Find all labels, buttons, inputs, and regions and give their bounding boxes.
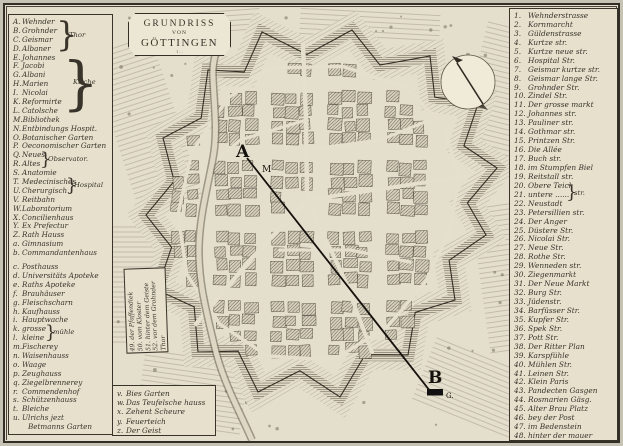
legend-key: F. [13, 62, 22, 69]
map-letter-g: G. [446, 392, 454, 400]
legend-key: g. [13, 299, 22, 306]
legend-number: 29. [514, 262, 528, 269]
legend-key: s. [13, 396, 22, 403]
legend-key: L. [13, 107, 22, 114]
legend-number: 17. [514, 155, 528, 162]
legend-number: 9. [514, 84, 528, 91]
legend-label: Gimnasium [22, 240, 63, 247]
legend-key: C. [13, 36, 22, 43]
legend-label: Waage [22, 361, 46, 368]
legend-label: Pauliner str. [528, 119, 573, 126]
legend-label: Wehnderstrasse [528, 12, 588, 19]
legend-entry: Betmanns Garten [13, 423, 111, 432]
legend-label: Cherurgisch. [22, 187, 69, 194]
legend-key: D. [13, 45, 22, 52]
legend-label: Burg Str. [528, 289, 562, 296]
legend-entry: b. Commandantenhaus [13, 249, 111, 258]
legend-key: M. [13, 116, 23, 123]
legend-key: x. [117, 407, 126, 416]
legend-label: Der Anger [528, 218, 567, 225]
north-arrow-icon [441, 55, 495, 110]
legend-label: Kupfer Str. [528, 316, 569, 323]
legend-label: Betmanns Garten [28, 423, 92, 430]
legend-entry: w. Das Teufelsche hauss [117, 398, 215, 407]
legend-label: Neustadt [528, 200, 562, 207]
legend-label: Posthauss [22, 263, 58, 270]
legend-number: 5. [514, 48, 528, 55]
legend-key: k. [13, 325, 22, 332]
legend-number: 31. [514, 280, 528, 287]
legend-label: Barfüsser Str. [528, 307, 580, 314]
legend-label: Reitbahn [22, 196, 55, 203]
legend-key: d. [13, 272, 22, 279]
legend-number: 3. [514, 30, 528, 37]
legend-key: a. [13, 240, 22, 247]
legend-label: Albaner [22, 45, 51, 52]
brace-label-muehle: mühle [53, 329, 74, 336]
legend-number: 18. [514, 164, 528, 171]
legend-label: Der grosse markt [528, 101, 594, 108]
legend-label: Geismar [22, 36, 53, 43]
legend-key: z. [117, 426, 126, 435]
legend-key: G. [13, 71, 22, 78]
legend-label: Geismar lange Str. [528, 75, 598, 82]
legend-key: b. [13, 249, 22, 256]
legend-number: 48. [514, 432, 528, 439]
legend-number: 43. [514, 387, 528, 394]
legend-key: p. [13, 370, 22, 377]
legend-key: H. [13, 80, 22, 87]
legend-label: Zehent Scheure [126, 407, 185, 416]
legend-label: Spek Str. [528, 325, 562, 332]
brace-label-kirche: Kirche [73, 79, 96, 86]
legend-number: 2. [514, 21, 528, 28]
legend-label: Reitstall str. [528, 173, 573, 180]
legend-number: 23. [514, 209, 528, 216]
legend-key: K. [13, 98, 22, 105]
legend-key: A. [13, 18, 22, 25]
legend-key: i. [13, 316, 22, 323]
legend-number: 24. [514, 218, 528, 225]
legend-label: untere ...... [528, 191, 569, 198]
legend-label: Rosmarien Gäsg. [528, 396, 592, 403]
legend-number: 33. [514, 298, 528, 305]
legend-label: im Bedenstein [528, 423, 582, 430]
legend-key: U. [13, 187, 22, 194]
legend-label: Feuerteich [126, 417, 166, 426]
legend-label: Mühlen Str. [528, 361, 572, 368]
legend-label: Schützenhauss [22, 396, 77, 403]
legend-number: 19. [514, 173, 528, 180]
legend-label: im Stumpfen Biel [528, 164, 593, 171]
legend-number: 32. [514, 289, 528, 296]
legend-number: 25. [514, 227, 528, 234]
legend-key: E. [13, 54, 22, 61]
legend-panel-letters: A. Wehnder B. Grohnder C. Geismar D. Alb… [8, 14, 113, 435]
legend-number: 26. [514, 235, 528, 242]
legend-label: Ziegelbrennerey [22, 379, 82, 386]
legend-label: Wenneden str. [528, 262, 581, 269]
legend-label: Ulrichs jezt [22, 414, 64, 421]
legend-label: Marien [22, 80, 48, 87]
legend-label: Zindel Str. [528, 92, 567, 99]
legend-label: Wehnder [22, 18, 55, 25]
legend-label: Pott Str. [528, 334, 559, 341]
brace-label-hospital: Hospital [74, 182, 103, 189]
legend-label: Kurtze str. [528, 39, 567, 46]
legend-key: c. [13, 263, 22, 270]
legend-label: Das Teufelsche hauss [126, 398, 205, 407]
legend-key: Q. [13, 151, 22, 158]
legend-key: W. [13, 205, 22, 212]
legend-label: Rath Hauss [22, 231, 64, 238]
legend-street-list: 1. Wehnderstrasse 2. Kornmarcht 3. Gülde… [514, 12, 616, 441]
legend-entry: v. Bies Garten [117, 389, 215, 398]
legend-label: Hospital Str. [528, 57, 575, 64]
legend-key: u. [13, 414, 22, 421]
legend-label: Anatomie [22, 169, 57, 176]
legend-label: Brauhäuser [22, 290, 65, 297]
map-letter-m: M [262, 165, 271, 175]
legend-label: Düstere Str. [528, 227, 573, 234]
legend-key: q. [13, 379, 22, 386]
legend-label: Commendenhof [22, 388, 79, 395]
legend-key: S. [13, 169, 22, 176]
legend-label: Kurtze neue str. [528, 48, 588, 55]
legend-label: Albani [22, 71, 45, 78]
legend-number: 46. [514, 414, 528, 421]
legend-label: Buch str. [528, 155, 561, 162]
legend-label: Entbindungs Hospit. [22, 125, 97, 132]
legend-number: 7. [514, 66, 528, 73]
legend-number: 20. [514, 182, 528, 189]
brace-label-str: str. [574, 190, 585, 197]
legend-label: Reformirte [22, 98, 62, 105]
legend-label: Commandantenhaus [22, 249, 97, 256]
legend-label: Johannes str. [528, 110, 576, 117]
legend-label: Bibliothek [23, 116, 60, 123]
map-title-line2: VON [129, 30, 230, 36]
annotation-letter-a: A [235, 142, 250, 162]
legend-key: e. [13, 281, 22, 288]
legend-label: Raths Apoteke [22, 281, 75, 288]
legend-label: Leinen Str. [528, 370, 569, 377]
legend-number: 4. [514, 39, 528, 46]
legend-label: Jüdenstr. [528, 298, 561, 305]
legend-label: Altes [22, 160, 40, 167]
legend-label: Fischerey [22, 343, 58, 350]
annotation-letter-b: B [428, 368, 442, 388]
legend-label: Grohnder Str. [528, 84, 580, 91]
legend-label: Der Ritter Plan [528, 343, 585, 350]
legend-number: 36. [514, 325, 528, 332]
legend-label: Bleiche [22, 405, 49, 412]
legend-key: R. [13, 160, 22, 167]
legend-number: 30. [514, 271, 528, 278]
legend-number: 10. [514, 92, 528, 99]
title-cartouche: GRUNDRISS VON GÖTTINGEN 1 : . [128, 13, 231, 56]
brace-label-thor: Thor [69, 32, 85, 39]
legend-label: Neue Str. [528, 244, 563, 251]
legend-label: Johannes [22, 54, 55, 61]
legend-label: Geismar kurtze str. [528, 66, 600, 73]
legend-number: 12. [514, 110, 528, 117]
legend-number: 14. [514, 128, 528, 135]
legend-key: O. [13, 134, 22, 141]
legend-number: 21. [514, 191, 528, 198]
legend-label: Ziegenmarkt [528, 271, 576, 278]
legend-label: Catolsche [22, 107, 58, 114]
legend-entry: 48. hinter der mauer [514, 432, 616, 441]
legend-key: N. [13, 125, 22, 132]
legend-number: 35. [514, 316, 528, 323]
legend-key: r. [13, 388, 22, 395]
legend-number: 15. [514, 137, 528, 144]
legend-key: n. [13, 352, 22, 359]
legend-number: 6. [514, 57, 528, 64]
legend-key: t. [13, 405, 22, 412]
legend-label: Laboratorium [22, 205, 72, 212]
legend-label: Güldenstrasse [528, 30, 582, 37]
legend-label: Nicolai Str. [528, 235, 570, 242]
map-title-line1: GRUNDRISS [129, 19, 230, 29]
legend-entry: y. Feuerteich [117, 417, 215, 426]
legend-key: I. [13, 89, 22, 96]
legend-label: Pandecten Gasgen [528, 387, 597, 394]
legend-key: l. [13, 334, 22, 341]
legend-number: 37. [514, 334, 528, 341]
legend-label: Universitäts Apoteke [22, 272, 99, 279]
legend-label: Klein Paris [528, 378, 568, 385]
legend-key: V. [13, 196, 22, 203]
legend-number: 16. [514, 146, 528, 153]
legend-key: y. [117, 417, 126, 426]
legend-number: 40. [514, 361, 528, 368]
legend-label: Rothe Str. [528, 253, 566, 260]
legend-number: 44. [514, 396, 528, 403]
legend-entry: Thor [158, 268, 169, 350]
legend-number: 41. [514, 370, 528, 377]
legend-label: Bies Garten [126, 389, 170, 398]
legend-label: Alter Brau Platz [528, 405, 588, 412]
legend-number: 13. [514, 119, 528, 126]
legend-bottom-list: v. Bies Garten w. Das Teufelsche hauss x… [117, 389, 215, 435]
legend-key: v. [117, 389, 126, 398]
legend-label: Kornmarcht [528, 21, 573, 28]
legend-key: B. [13, 27, 22, 34]
legend-number: 22. [514, 200, 528, 207]
legend-label: Petersillien str. [528, 209, 584, 216]
legend-key: m. [13, 343, 22, 350]
legend-panel-streets: 1. Wehnderstrasse 2. Kornmarcht 3. Gülde… [509, 8, 618, 441]
legend-number: 27. [514, 244, 528, 251]
legend-key: f. [13, 290, 22, 297]
legend-key: Z. [13, 231, 22, 238]
legend-key: T. [13, 178, 22, 185]
legend-box-rotated: 49. der Pfaffendiek 50. vom Kloster 51. … [124, 267, 169, 353]
legend-key: o. [13, 361, 22, 368]
legend-number: 11. [514, 101, 528, 108]
legend-label: Der Geist [126, 426, 161, 435]
legend-label: Nicolai [22, 89, 48, 96]
legend-label: Grohnder [22, 27, 57, 34]
legend-label: bey der Post [528, 414, 575, 421]
legend-label: Gothmar str. [528, 128, 575, 135]
legend-label: Kaufhauss [22, 308, 60, 315]
legend-label: Printzen Str. [528, 137, 575, 144]
legend-number: 38. [514, 343, 528, 350]
legend-label: kleine [22, 334, 44, 341]
legend-label: Waisenhauss [22, 352, 69, 359]
legend-entry: z. Der Geist [117, 426, 215, 435]
legend-key: X. [13, 214, 22, 221]
map-photo: ABMG. GRUNDRISS VON GÖTTINGEN 1 : . A. W… [0, 0, 623, 446]
legend-number: 39. [514, 352, 528, 359]
legend-number: 47. [514, 423, 528, 430]
legend-label: hinter der mauer [528, 432, 592, 439]
legend-label: grosse [22, 325, 46, 332]
legend-number: 8. [514, 75, 528, 82]
legend-label: Jacobi [22, 62, 44, 69]
map-title-scale: 1 : . [129, 49, 230, 54]
legend-label: Zeughauss [22, 370, 61, 377]
brace-label-observatory: Observator. [48, 156, 88, 163]
legend-label: Botanischer Garten [22, 134, 93, 141]
legend-label: Die Allée [528, 146, 562, 153]
legend-number: 28. [514, 253, 528, 260]
legend-entry: x. Zehent Scheure [117, 407, 215, 416]
legend-label: Ex Prefectur [22, 222, 68, 229]
legend-label: Concilienhaus [22, 214, 74, 221]
legend-number: 45. [514, 405, 528, 412]
map-title-line3: GÖTTINGEN [129, 37, 230, 49]
legend-number: 34. [514, 307, 528, 314]
legend-number: 42. [514, 378, 528, 385]
legend-label: Der Neue Markt [528, 280, 589, 287]
legend-key: h. [13, 308, 22, 315]
legend-number: 1. [514, 12, 528, 19]
legend-label: Karspfühle [528, 352, 569, 359]
legend-key: P. [13, 142, 22, 149]
legend-box-bottom: v. Bies Garten w. Das Teufelsche hauss x… [112, 385, 216, 436]
legend-key: Y. [13, 222, 22, 229]
legend-label: Oeconomischer Garten [22, 142, 106, 149]
legend-label: Fleischscharn [22, 299, 73, 306]
legend-rotated-list: 49. der Pfaffendiek 50. vom Kloster 51. … [125, 268, 170, 353]
legend-key: w. [117, 398, 126, 407]
